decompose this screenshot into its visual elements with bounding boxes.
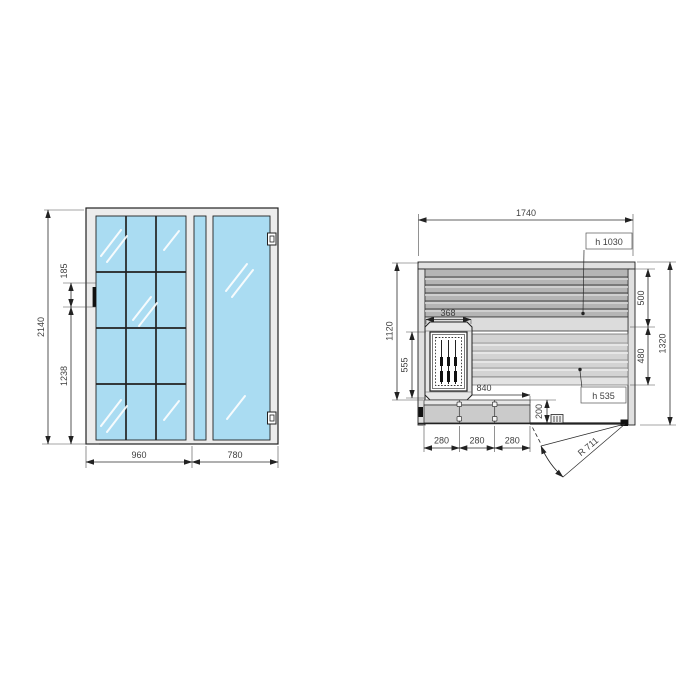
front-elevation-view: 2140 185 1238 960 780 bbox=[36, 208, 278, 468]
wall-back bbox=[418, 262, 635, 269]
dim-heater-width: 368 bbox=[440, 308, 455, 318]
heater bbox=[425, 322, 472, 400]
dim-step-segment-2: 280 bbox=[469, 436, 484, 446]
dim-upper-bench-depth: 500 bbox=[636, 290, 646, 305]
handle-mark bbox=[93, 287, 96, 307]
dim-step-length: 840 bbox=[476, 383, 491, 393]
dim-step-depth: 200 bbox=[534, 404, 544, 419]
dim-step-segment-3: 280 bbox=[505, 436, 520, 446]
dim-glass-wall-width: 960 bbox=[131, 450, 146, 460]
bench-lower bbox=[472, 334, 628, 385]
step-bench bbox=[424, 400, 530, 423]
glass-door bbox=[213, 216, 270, 440]
dim-handle-section: 185 bbox=[59, 263, 69, 278]
dim-total-height: 2140 bbox=[36, 317, 46, 337]
drawing-canvas: 2140 185 1238 960 780 bbox=[0, 0, 700, 700]
floor-plan-view: 840 bbox=[385, 208, 677, 477]
dim-heater-depth: 555 bbox=[400, 357, 410, 372]
dim-step-segment-1: 280 bbox=[434, 436, 449, 446]
door-swing: R 711 bbox=[533, 424, 626, 477]
front-handle-plan bbox=[419, 407, 424, 417]
sauna-technical-drawing: 2140 185 1238 960 780 bbox=[0, 0, 700, 700]
glass-sidelight bbox=[194, 216, 206, 440]
dim-handle-height: 1238 bbox=[59, 366, 69, 386]
dim-total-width: 1740 bbox=[516, 208, 536, 218]
door-handle-plan bbox=[551, 415, 563, 424]
dim-lower-bench-height: h 535 bbox=[592, 391, 615, 401]
dim-upper-bench-height: h 1030 bbox=[595, 237, 623, 247]
wall-right bbox=[628, 269, 635, 425]
dim-door-width: 780 bbox=[227, 450, 242, 460]
dim-total-depth: 1320 bbox=[658, 333, 668, 353]
door-swing-arc bbox=[541, 446, 563, 477]
dim-door-radius: R 711 bbox=[576, 435, 600, 458]
dim-interior-depth: 1120 bbox=[385, 321, 395, 340]
door-open-line bbox=[533, 428, 542, 445]
dim-lower-bench-depth: 480 bbox=[636, 348, 646, 363]
